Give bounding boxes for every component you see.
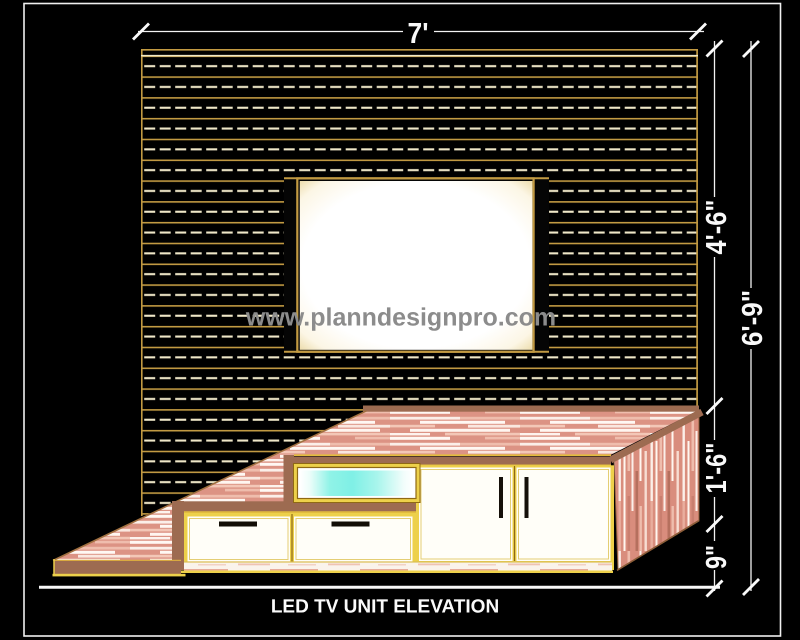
svg-text:www.planndesignpro.com: www.planndesignpro.com	[245, 304, 556, 332]
svg-text:7': 7'	[408, 18, 429, 50]
svg-text:LED TV UNIT ELEVATION: LED TV UNIT ELEVATION	[271, 597, 499, 618]
svg-text:9": 9"	[701, 545, 733, 569]
svg-text:6'-9": 6'-9"	[737, 290, 769, 346]
svg-text:4'-6": 4'-6"	[701, 200, 733, 255]
svg-text:1'-6": 1'-6"	[701, 443, 733, 494]
